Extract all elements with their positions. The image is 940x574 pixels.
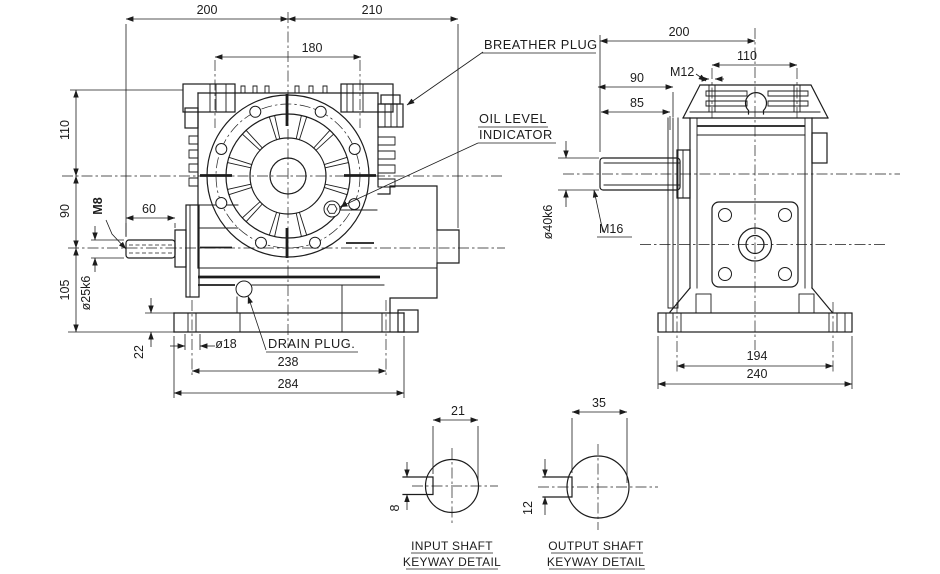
dim-side-85: 85: [630, 96, 644, 110]
dim-front-105: 105: [58, 280, 72, 301]
callouts: BREATHER PLUG OIL LEVEL INDICATOR DRAIN …: [248, 37, 598, 352]
dim-front-foot-hole: ø18: [215, 337, 237, 351]
dim-front-110: 110: [58, 120, 72, 140]
dim-front-284: 284: [278, 377, 299, 391]
caption-output-keyway: KEYWAY DETAIL: [547, 555, 645, 569]
label-oil-level-line1: OIL LEVEL: [479, 111, 547, 126]
caption-input-keyway: KEYWAY DETAIL: [403, 555, 501, 569]
dim-front-238: 238: [278, 355, 299, 369]
top-fins: [241, 86, 327, 93]
front-extension-housing: [378, 186, 459, 332]
m12-tapped-holes: [709, 85, 800, 112]
input-shaft: [126, 205, 199, 297]
dim-side-shaft-dia: ø40k6: [541, 205, 555, 240]
dim-front-90: 90: [58, 204, 72, 218]
input-flange: [186, 205, 199, 297]
label-m8-thread: M8: [91, 197, 105, 214]
label-drain-plug: DRAIN PLUG.: [268, 336, 355, 351]
dim-front-22: 22: [132, 345, 146, 359]
label-oil-level-line2: INDICATOR: [479, 127, 553, 142]
side-centerlines: [563, 28, 900, 372]
breather-hole: [745, 93, 766, 114]
left-boss: [185, 108, 198, 128]
dim-input-keyway-21: 21: [451, 404, 465, 418]
dim-front-210: 210: [362, 3, 383, 17]
dim-front-shaft-dia: ø25k6: [79, 276, 93, 311]
front-view: 200 210 180 110 90 105 22 M8: [58, 3, 598, 398]
dim-side-110: 110: [737, 49, 757, 63]
dim-front-180: 180: [302, 41, 323, 55]
dim-output-keyway-12: 12: [521, 501, 535, 515]
output-keyway-detail: 35 12 OUTPUT SHAFT KEYWAY DETAIL: [521, 396, 658, 569]
side-left-fin-plate: [668, 118, 678, 308]
side-view: 200 110 M12 90 85 ø40k6 M16: [541, 25, 900, 389]
input-keyway-detail: 21 8 INPUT SHAFT KEYWAY DETAIL: [388, 404, 501, 569]
side-housing: [668, 85, 832, 313]
caption-output-shaft: OUTPUT SHAFT: [548, 539, 644, 553]
dim-front-60: 60: [142, 202, 156, 216]
dim-side-240: 240: [747, 367, 768, 381]
input-shaft-collar: [175, 230, 186, 267]
left-fins: [189, 136, 198, 186]
caption-input-shaft: INPUT SHAFT: [411, 539, 493, 553]
right-fins: [378, 137, 395, 187]
front-centerlines: [62, 12, 505, 378]
dim-side-90: 90: [630, 71, 644, 85]
dim-front-200: 200: [197, 3, 218, 17]
dim-side-194: 194: [747, 349, 768, 363]
front-mounting-base: [174, 281, 404, 332]
drain-plug: [236, 281, 252, 297]
side-right-boss: [812, 133, 827, 163]
oil-level-indicator: [324, 201, 340, 217]
gear-reducer-dimension-drawing: 200 210 180 110 90 105 22 M8: [0, 0, 940, 574]
breather-plug: [378, 95, 403, 127]
label-breather-plug: BREATHER PLUG: [484, 37, 598, 52]
engineering-drawing-canvas: 200 210 180 110 90 105 22 M8: [0, 0, 940, 574]
dim-side-200: 200: [669, 25, 690, 39]
dim-output-keyway-35: 35: [592, 396, 606, 410]
label-m12-thread: M12: [670, 65, 694, 79]
label-m16-thread: M16: [599, 222, 623, 236]
front-dimensions: 200 210 180 110 90 105 22 M8: [58, 3, 458, 398]
dim-input-keyway-8: 8: [388, 504, 402, 511]
